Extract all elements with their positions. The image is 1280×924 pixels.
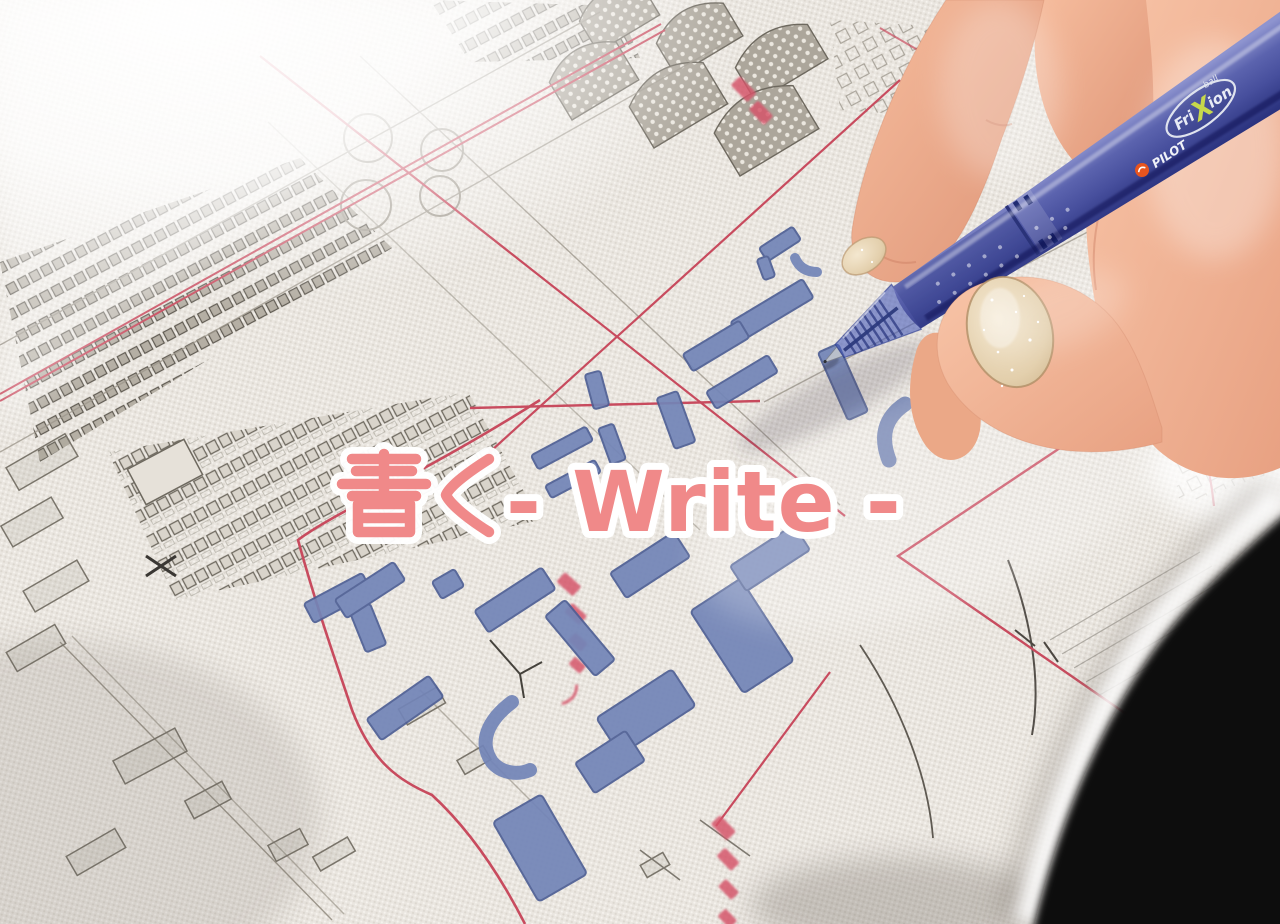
overlay-title-latin: - Write - xyxy=(506,453,902,551)
photo-writing-on-fabric-map: 書く - Write - xyxy=(0,0,1280,924)
knuckle-highlight xyxy=(940,0,1060,180)
